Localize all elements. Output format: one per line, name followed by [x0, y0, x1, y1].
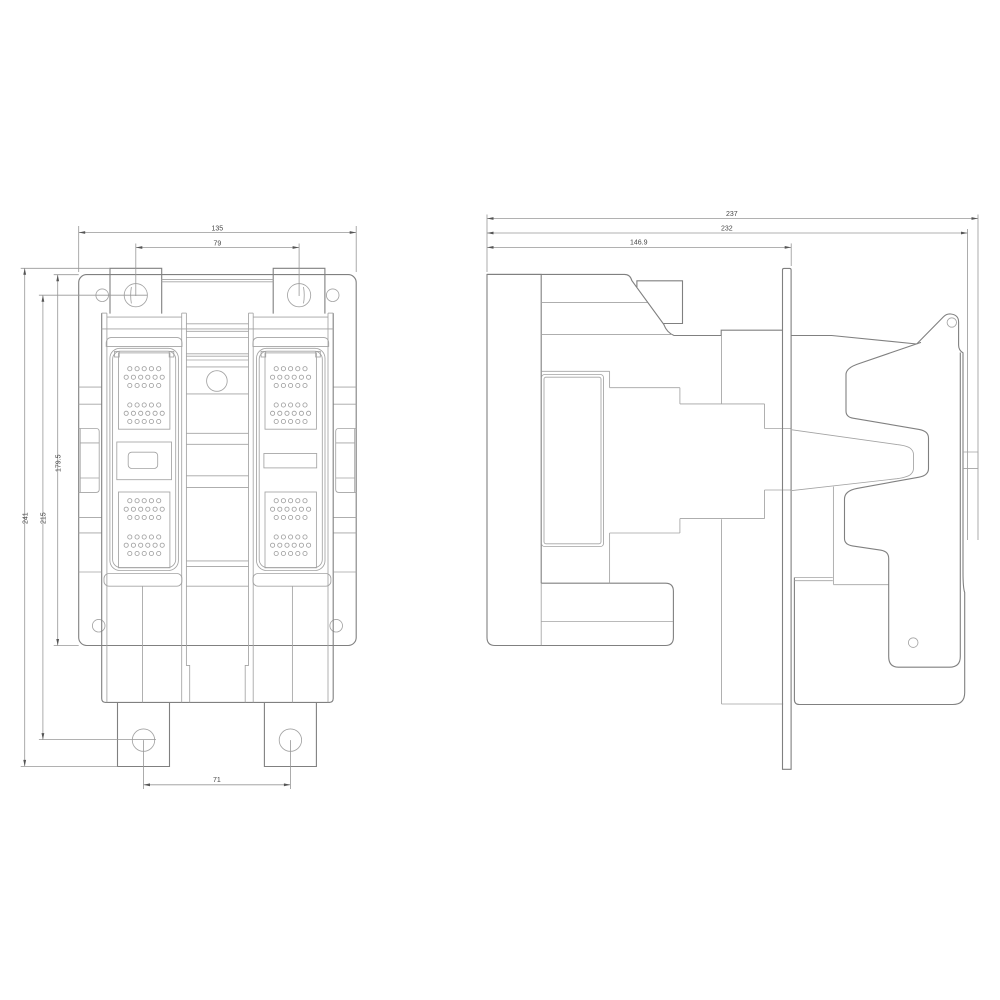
- svg-text:232: 232: [721, 225, 733, 232]
- svg-text:135: 135: [212, 226, 224, 233]
- svg-text:237: 237: [726, 211, 738, 218]
- svg-text:241: 241: [22, 512, 29, 524]
- svg-text:215: 215: [41, 512, 48, 524]
- svg-text:146.9: 146.9: [630, 240, 648, 247]
- svg-text:179.5: 179.5: [55, 454, 62, 472]
- svg-text:71: 71: [213, 777, 221, 784]
- svg-text:79: 79: [214, 241, 222, 248]
